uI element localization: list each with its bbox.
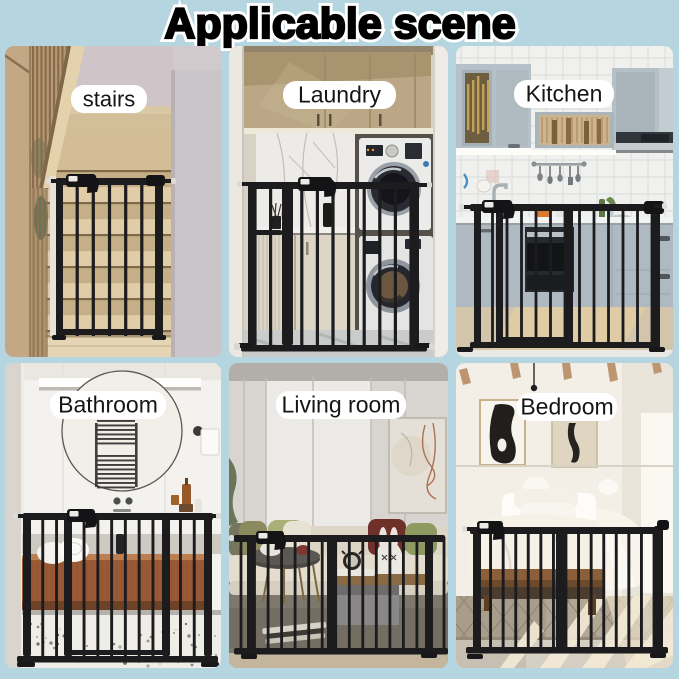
- svg-text:stairs: stairs: [83, 87, 136, 112]
- svg-text:Bathroom: Bathroom: [58, 392, 158, 418]
- svg-text:Applicable scene: Applicable scene: [164, 0, 515, 48]
- svg-text:Living room: Living room: [282, 392, 401, 418]
- svg-text:Bedroom: Bedroom: [520, 394, 613, 420]
- svg-text:Laundry: Laundry: [298, 82, 382, 108]
- svg-text:Kitchen: Kitchen: [526, 81, 603, 107]
